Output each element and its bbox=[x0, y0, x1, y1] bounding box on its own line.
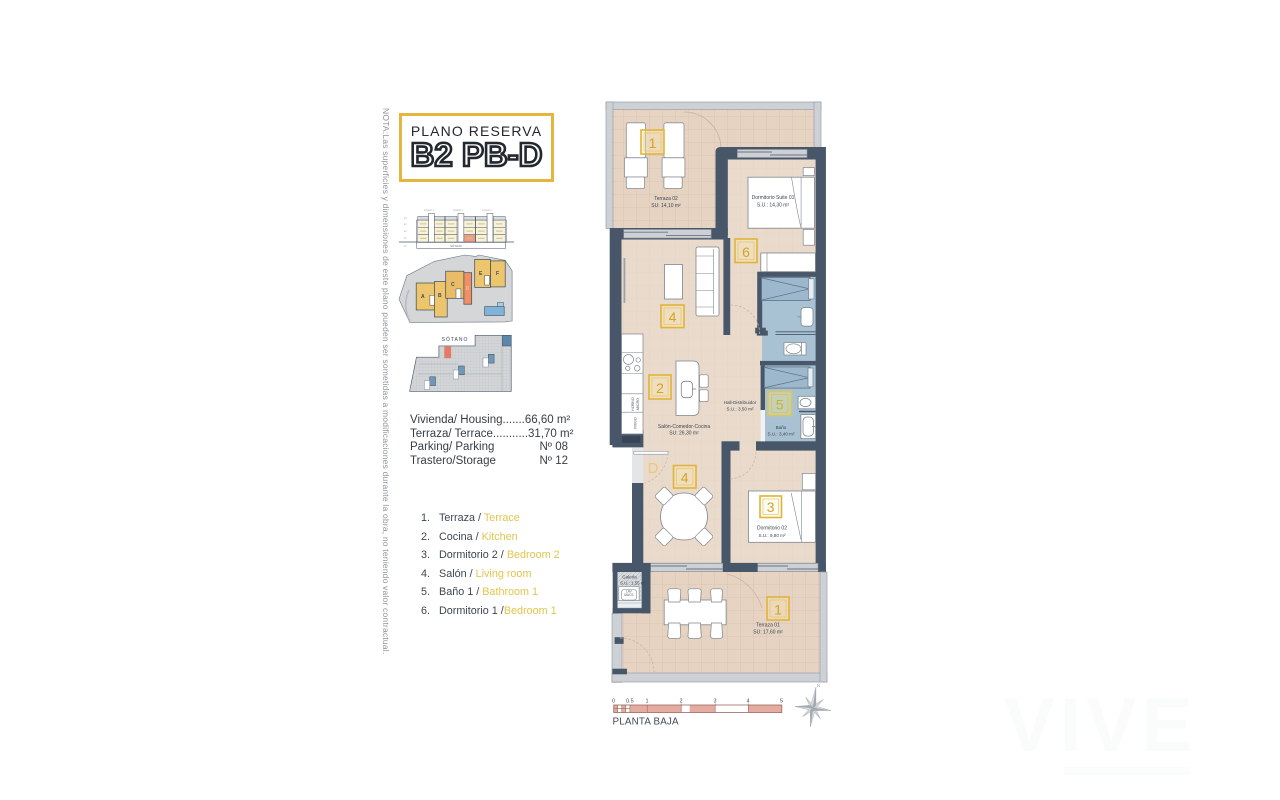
svg-text:Salón-Comedor-Cocina: Salón-Comedor-Cocina bbox=[658, 424, 710, 430]
svg-text:xx: xx bbox=[404, 230, 407, 233]
svg-text:HORNO: HORNO bbox=[631, 397, 635, 411]
svg-text:1: 1 bbox=[649, 135, 657, 151]
svg-text:D: D bbox=[466, 286, 470, 292]
svg-text:Galería: Galería bbox=[622, 575, 637, 580]
svg-text:xxxxxx x: xxxxxx x bbox=[424, 209, 435, 212]
svg-text:N: N bbox=[817, 683, 820, 688]
svg-text:xxxxxx x: xxxxxx x bbox=[453, 209, 464, 212]
svg-text:3: 3 bbox=[714, 699, 717, 705]
svg-text:FRIGO: FRIGO bbox=[634, 417, 638, 429]
svg-text:5: 5 bbox=[776, 397, 784, 413]
svg-text:S.U.: 9,80 m²: S.U.: 9,80 m² bbox=[758, 533, 786, 538]
svg-text:4: 4 bbox=[747, 699, 750, 705]
svg-text:Dormitorio 02: Dormitorio 02 bbox=[757, 526, 787, 532]
svg-text:4: 4 bbox=[669, 309, 677, 325]
svg-text:0: 0 bbox=[612, 699, 615, 705]
svg-text:SU: 26,30 m²: SU: 26,30 m² bbox=[669, 431, 699, 437]
svg-text:SÓTANO: SÓTANO bbox=[450, 243, 462, 248]
svg-text:D: D bbox=[648, 460, 659, 477]
svg-text:xx: xx bbox=[404, 245, 407, 248]
svg-text:xx: xx bbox=[404, 217, 407, 220]
svg-text:MICRO: MICRO bbox=[636, 398, 640, 410]
svg-text:5: 5 bbox=[780, 699, 783, 705]
svg-text:1: 1 bbox=[646, 699, 649, 705]
svg-text:Hall-Distribuidor: Hall-Distribuidor bbox=[724, 400, 757, 405]
svg-text:S.U.: 3,40 m²: S.U.: 3,40 m² bbox=[767, 432, 795, 437]
svg-text:0.5: 0.5 bbox=[626, 699, 634, 705]
svg-text:Baño: Baño bbox=[776, 425, 787, 430]
svg-text:xx: xx bbox=[404, 223, 407, 226]
svg-text:4: 4 bbox=[681, 470, 689, 486]
svg-text:F: F bbox=[496, 271, 499, 277]
svg-text:3: 3 bbox=[767, 499, 775, 515]
svg-text:xx: xx bbox=[404, 237, 407, 240]
svg-text:1: 1 bbox=[774, 602, 782, 618]
svg-text:S.U.: 14,30 m²: S.U.: 14,30 m² bbox=[757, 203, 790, 209]
svg-text:6: 6 bbox=[742, 244, 750, 260]
svg-text:2: 2 bbox=[656, 380, 664, 396]
svg-text:SÓTANO: SÓTANO bbox=[442, 336, 469, 343]
svg-text:Dormitorio Suite 01: Dormitorio Suite 01 bbox=[752, 195, 795, 201]
svg-text:C: C bbox=[451, 282, 455, 288]
svg-text:2: 2 bbox=[680, 699, 683, 705]
svg-text:SU: 14,10 m²: SU: 14,10 m² bbox=[651, 203, 681, 209]
svg-text:PLANTA BAJA: PLANTA BAJA bbox=[613, 717, 680, 728]
svg-text:B: B bbox=[438, 293, 442, 299]
svg-text:S.U.: 1,55 m²: S.U.: 1,55 m² bbox=[620, 581, 646, 586]
svg-text:Terraza 02: Terraza 02 bbox=[654, 196, 678, 202]
svg-text:MACS: MACS bbox=[624, 593, 633, 597]
svg-text:xxxxxx x: xxxxxx x bbox=[482, 209, 493, 212]
svg-text:S.U.: 3,50 m²: S.U.: 3,50 m² bbox=[726, 407, 754, 412]
svg-text:A: A bbox=[421, 294, 425, 300]
svg-text:SU: 17,60 m²: SU: 17,60 m² bbox=[753, 630, 783, 636]
svg-text:Terraza 01: Terraza 01 bbox=[756, 623, 780, 629]
